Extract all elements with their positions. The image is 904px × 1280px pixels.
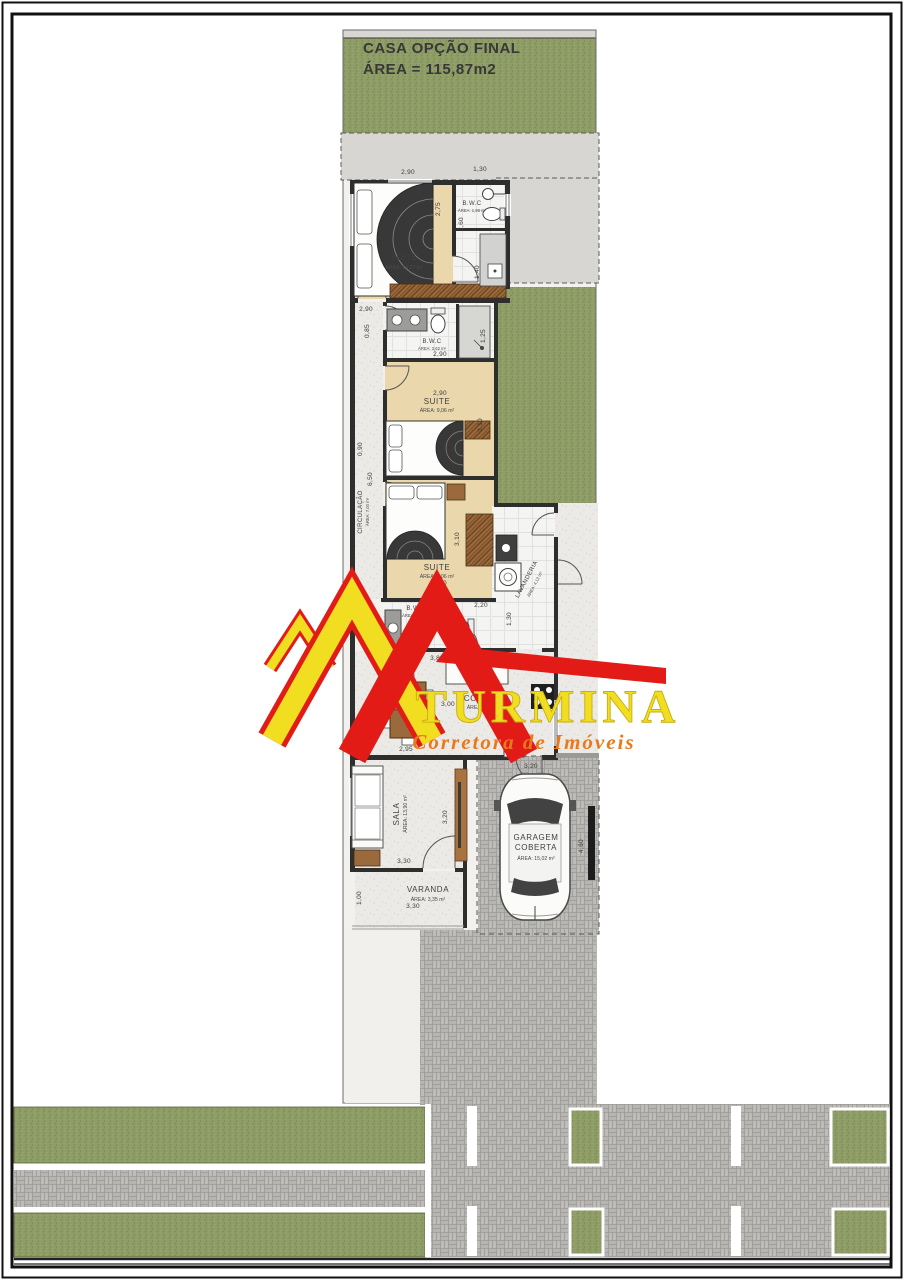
pillow [389,425,402,447]
car-mirror-right [569,800,576,811]
room-area-sala: ÁREA: 13,90 m² [402,795,409,833]
wall-suite1-bottom-a [350,298,358,303]
room-label-garagem-2: COBERTA [515,843,557,852]
wall-social-bottom-b [542,755,558,760]
sidewalk-joint-2 [731,1106,741,1166]
grass-strip-bottom [14,1213,425,1257]
lavanderia-fixtures [495,535,521,591]
dim-suite1-wb: 2,95 [413,278,427,285]
dim-garagem-h: 4,60 [578,839,585,853]
dim-varanda-w: 3,30 [406,903,420,910]
dim-circ-h: 6,50 [367,472,374,486]
dim-bwc2-w: 2,90 [433,351,447,358]
room-area-varanda: ÁREA: 3,35 m² [411,896,446,903]
nightstand-suite3 [447,484,465,500]
floor-plan-svg: CASA OPÇÃO FINAL ÁREA = 115,87m2 [0,0,904,1280]
toilet-bwc2 [431,315,445,333]
wall-social-bottom-a [350,755,516,760]
wall-sala-varanda-b [455,868,467,872]
room-area-circulacao: ÁREA: 7,00 m² [365,497,370,526]
dim-circ-top: 2,90 [359,306,373,313]
pillow [417,486,442,499]
car-mirror-left [494,800,501,811]
dim-sala-h: 3,20 [442,810,449,824]
roof-overhang-top [341,133,599,180]
watermark-name: TURMINA [416,681,681,733]
roof-overhang-side [496,178,599,283]
room-label-bwc1: B.W.C [462,201,481,207]
room-area-suite1: ÁREA: 14,27 m² [385,264,423,271]
wall-sala-varanda-a [350,868,423,872]
pillow [389,486,414,499]
lot-grass-right [498,287,596,503]
sink-bwc1 [483,189,494,200]
title-line2: ÁREA = 115,87m2 [363,61,496,78]
tree-pit-bottom-1 [570,1209,603,1255]
wall-bwc3-bottom-c [542,648,558,652]
dim-bwc3-w: 2,20 [474,602,488,609]
wall-suite1-bwc1a [452,180,456,256]
room-area-suite2: ÁREA: 9,06 m² [420,407,455,414]
plan-sheet: CASA OPÇÃO FINAL ÁREA = 115,87m2 [0,0,904,1280]
dim-suite1-h: 2,75 [435,202,442,216]
dim-suite2-w: 2,90 [433,390,447,397]
tree-pit-top-2 [831,1109,888,1165]
pillow [357,244,372,288]
wall-suite2-suite3 [383,476,496,480]
wall-garage-right [588,806,595,880]
wall-bwc2-bottom [383,358,496,362]
sidewalk-joint-3 [467,1206,477,1256]
sidewalk-joint-1 [467,1106,477,1166]
title-line1: CASA OPÇÃO FINAL [363,39,520,57]
wall-shower-divider [456,304,459,358]
dim-bwc2-h: 1,25 [480,329,487,343]
room-label-circulacao: CIRCULAÇÃO [357,490,364,533]
dim-bwc1-hb: 1,40 [474,265,481,279]
bed-suite3 [386,483,445,559]
room-label-varanda: VARANDA [407,885,449,894]
wall-lav-right-a [554,503,558,513]
dim-jantar-w: 2,95 [399,746,413,753]
dim-bwc1-w: 1,30 [473,166,487,173]
pillow [389,450,402,472]
dim-lav-h: 1,30 [506,612,513,626]
floor-varanda [355,871,464,928]
wall-lav-top [494,503,558,507]
dim-circ-top2: 0,85 [364,324,371,338]
room-label-sala: SALA [392,803,401,826]
tree-pit-bottom-2 [833,1209,888,1255]
wall-lav-right-b [554,537,558,584]
wall-suite1-bottom-b [386,298,510,303]
dim-suite2-h: 3,10 [477,418,484,432]
wall-lav-right-c [554,584,558,652]
washing-machine [495,563,521,591]
dim-garagem-w: 3,20 [524,763,538,770]
room-label-suite2: SUITE [424,397,451,406]
street-band [14,1104,890,1264]
dim-suite1-w: 2,90 [401,169,415,176]
watermark-tagline: Corretora de Imóveis [412,730,635,754]
dim-circ-w: 0,90 [357,442,364,456]
grass-strip-top [14,1107,425,1163]
pillow [357,190,372,234]
room-area-garagem: ÁREA: 15,02 m² [517,855,555,862]
room-label-bwc2: B.W.C [422,339,441,345]
coffee-table [354,850,380,866]
sidewalk-joint-4 [731,1206,741,1256]
lot-top-wall [343,30,596,38]
front-yard [345,930,420,1103]
wall-corridor-a [383,302,387,306]
dim-bwc1-h: 2,60 [458,217,465,231]
bed-suite2 [386,421,463,476]
tv [458,782,461,848]
wardrobe-suite3 [466,514,493,566]
room-area-bwc1: ÁREA: 1,98 m² [458,208,487,213]
driveway [420,930,596,1105]
wall-right-mid [494,288,498,507]
tree-pit-top-1 [570,1109,601,1165]
wall-varanda-right [463,872,467,928]
dim-sala-w: 3,30 [397,858,411,865]
sidewalk-paver-strip [14,1170,890,1207]
room-label-suite1: SUITE [391,253,418,262]
sidewalk-joint-left [425,1104,431,1257]
room-label-garagem-1: GARAGEM [513,833,558,842]
dim-suite3-h: 3,10 [454,532,461,546]
dim-varanda-h: 1,00 [356,891,363,905]
